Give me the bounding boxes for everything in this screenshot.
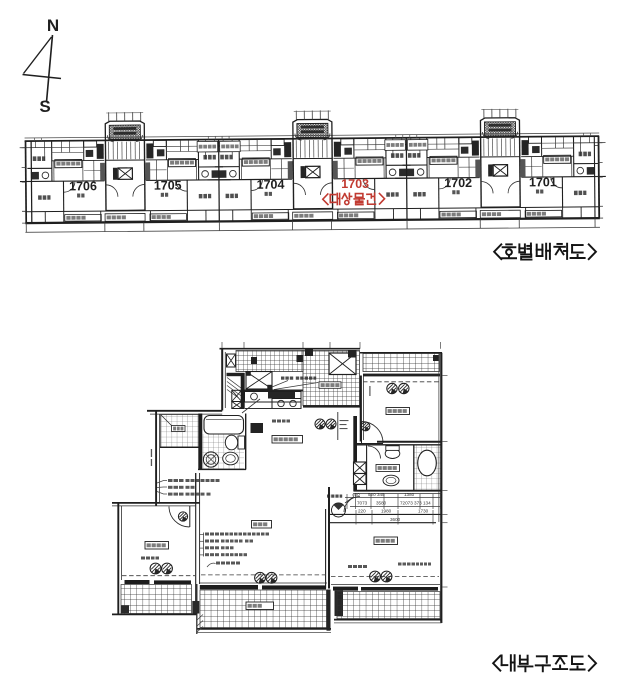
svg-text:220: 220: [358, 509, 366, 514]
svg-text:3600: 3600: [390, 517, 401, 522]
svg-text:1705: 1705: [154, 178, 182, 192]
svg-text:1704: 1704: [257, 178, 285, 192]
svg-text:520 345: 520 345: [368, 492, 385, 497]
svg-text:S: S: [39, 97, 50, 116]
svg-text:7073: 7073: [357, 501, 368, 506]
svg-text:1702: 1702: [444, 176, 472, 190]
svg-text:1380: 1380: [404, 492, 415, 497]
svg-text:1703: 1703: [341, 177, 369, 191]
svg-text:1730: 1730: [418, 509, 429, 514]
svg-text:1701: 1701: [529, 175, 557, 189]
svg-text:1706: 1706: [69, 179, 97, 193]
svg-text:1980: 1980: [381, 509, 392, 514]
svg-text:3580: 3580: [376, 501, 387, 506]
svg-text:72073 373 134: 72073 373 134: [400, 501, 431, 506]
svg-text:400: 400: [352, 492, 360, 497]
svg-text:N: N: [47, 16, 59, 35]
